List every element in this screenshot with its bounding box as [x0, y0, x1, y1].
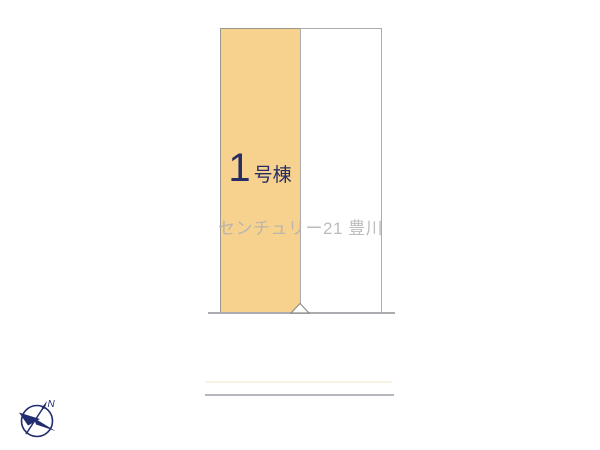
- boundary-marker-icon: [289, 302, 311, 314]
- road-edge-line: [205, 394, 394, 396]
- compass-icon: N: [14, 396, 60, 444]
- compass-north-label: N: [48, 399, 56, 410]
- building-number: 1: [228, 148, 251, 188]
- site-plan-canvas: 1 号棟 センチュリー21 豊川 N: [0, 0, 600, 450]
- lot-2-polygon: [300, 28, 382, 314]
- building-suffix: 号棟: [254, 166, 292, 185]
- building-label: 1 号棟: [220, 148, 300, 188]
- road-edge-line-faint: [205, 381, 392, 383]
- watermark-text: センチュリー21 豊川: [218, 220, 383, 237]
